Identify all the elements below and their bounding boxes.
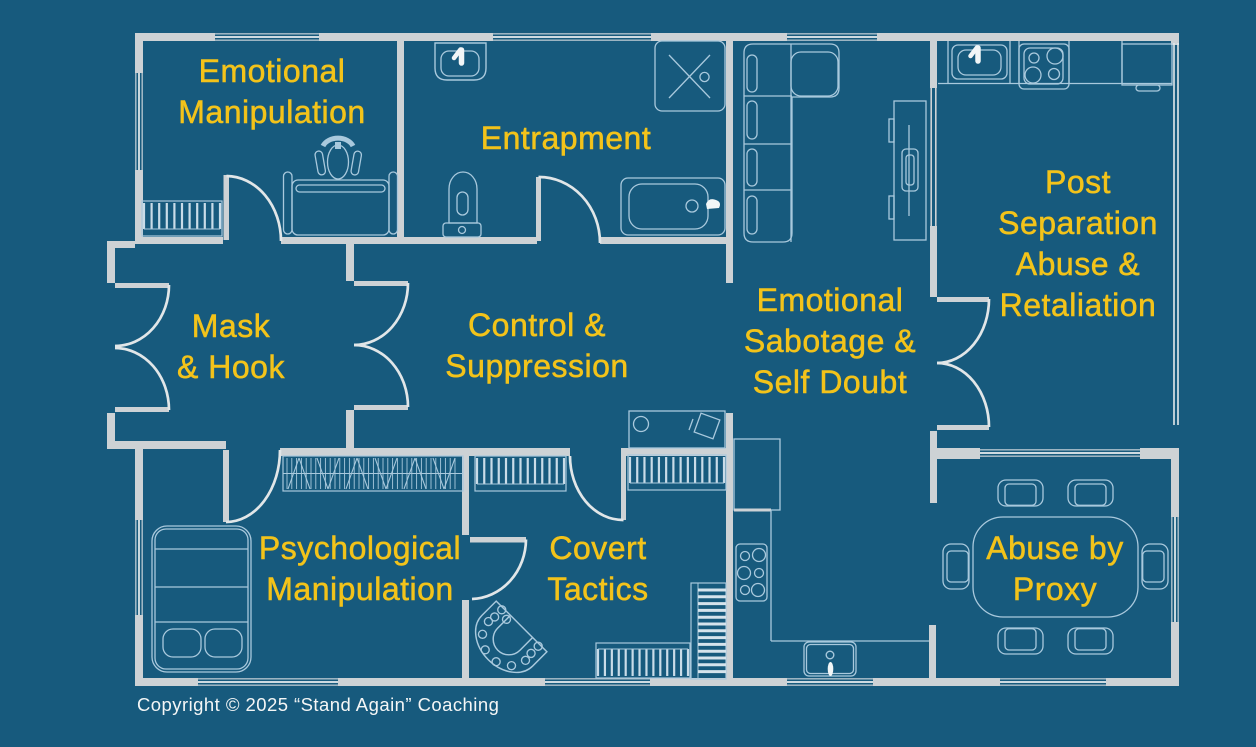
svg-text:Emotional: Emotional	[199, 53, 346, 89]
svg-text:Separation: Separation	[998, 205, 1158, 241]
svg-text:Manipulation: Manipulation	[266, 571, 453, 607]
svg-text:Proxy: Proxy	[1013, 571, 1097, 607]
svg-text:Self Doubt: Self Doubt	[753, 364, 907, 400]
svg-text:Entrapment: Entrapment	[481, 120, 651, 156]
svg-text:Retaliation: Retaliation	[1000, 287, 1157, 323]
svg-text:Sabotage &: Sabotage &	[744, 323, 916, 359]
svg-text:Tactics: Tactics	[547, 571, 648, 607]
svg-text:Suppression: Suppression	[445, 348, 628, 384]
svg-text:Abuse by: Abuse by	[986, 530, 1123, 566]
svg-text:Psychological: Psychological	[259, 530, 461, 566]
svg-text:Manipulation: Manipulation	[178, 94, 365, 130]
svg-text:Post: Post	[1045, 164, 1111, 200]
svg-text:Emotional: Emotional	[757, 282, 904, 318]
svg-text:& Hook: & Hook	[177, 349, 285, 385]
svg-text:Covert: Covert	[549, 530, 646, 566]
svg-text:Abuse &: Abuse &	[1016, 246, 1140, 282]
svg-text:Mask: Mask	[192, 308, 271, 344]
svg-text:Copyright © 2025 “Stand Again”: Copyright © 2025 “Stand Again” Coaching	[137, 694, 499, 715]
svg-text:Control &: Control &	[468, 307, 606, 343]
